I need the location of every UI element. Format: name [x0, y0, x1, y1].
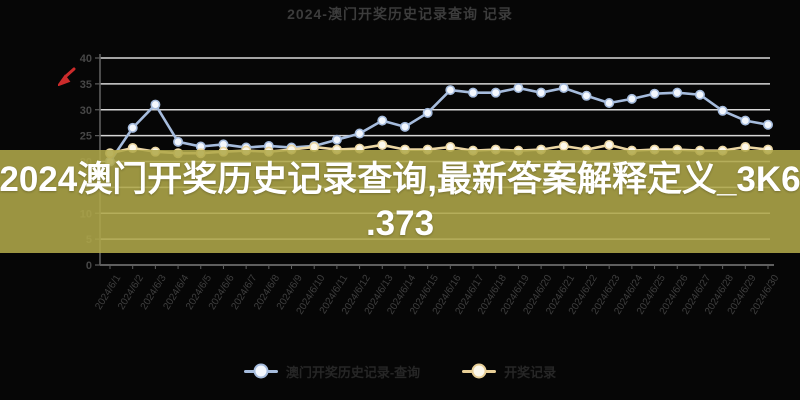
legend-item-series1[interactable]: 澳门开奖历史记录-查询 — [244, 362, 420, 381]
data-point-marker — [696, 91, 704, 99]
data-point-marker — [650, 90, 658, 98]
promo-banner: 2024澳门开奖历史记录查询,最新答案解释定义_3K6 .373 — [0, 150, 800, 253]
legend-label-series1: 澳门开奖历史记录-查询 — [286, 362, 420, 381]
data-point-marker — [560, 142, 568, 150]
data-point-marker — [741, 116, 749, 124]
data-point-marker — [764, 121, 772, 129]
data-point-marker — [514, 84, 522, 92]
series2-marker-icon — [462, 364, 496, 379]
chart-legend: 澳门开奖历史记录-查询 开奖记录 — [0, 358, 800, 384]
series1-marker-icon — [244, 364, 278, 379]
y-tick-label: 30 — [80, 105, 92, 117]
y-tick-label: 0 — [86, 260, 92, 272]
y-tick-label: 35 — [80, 79, 92, 91]
data-point-marker — [469, 88, 477, 96]
data-point-marker — [560, 84, 568, 92]
y-tick-label: 25 — [80, 131, 92, 143]
data-point-marker — [401, 123, 409, 131]
data-point-marker — [333, 136, 341, 144]
data-point-marker — [128, 124, 136, 132]
legend-item-series2[interactable]: 开奖记录 — [462, 362, 556, 381]
legend-label-series2: 开奖记录 — [504, 362, 556, 381]
data-point-marker — [492, 88, 500, 96]
data-point-marker — [537, 88, 545, 96]
banner-text-line2: .373 — [366, 202, 434, 246]
data-point-marker — [673, 88, 681, 96]
data-point-marker — [605, 99, 613, 107]
data-point-marker — [582, 92, 590, 100]
data-point-marker — [605, 141, 613, 149]
data-point-marker — [378, 141, 386, 149]
page-title: 2024-澳门开奖历史记录查询 记录 — [0, 4, 800, 24]
data-point-marker — [151, 100, 159, 108]
data-point-marker — [355, 129, 363, 137]
red-marker-icon — [58, 66, 76, 86]
data-point-marker — [718, 107, 726, 115]
data-point-marker — [174, 138, 182, 146]
banner-text-line1: 2024澳门开奖历史记录查询,最新答案解释定义_3K6 — [0, 158, 800, 202]
data-point-marker — [378, 116, 386, 124]
y-tick-label: 40 — [80, 53, 92, 65]
data-point-marker — [446, 86, 454, 94]
data-point-marker — [628, 95, 636, 103]
data-point-marker — [423, 109, 431, 117]
